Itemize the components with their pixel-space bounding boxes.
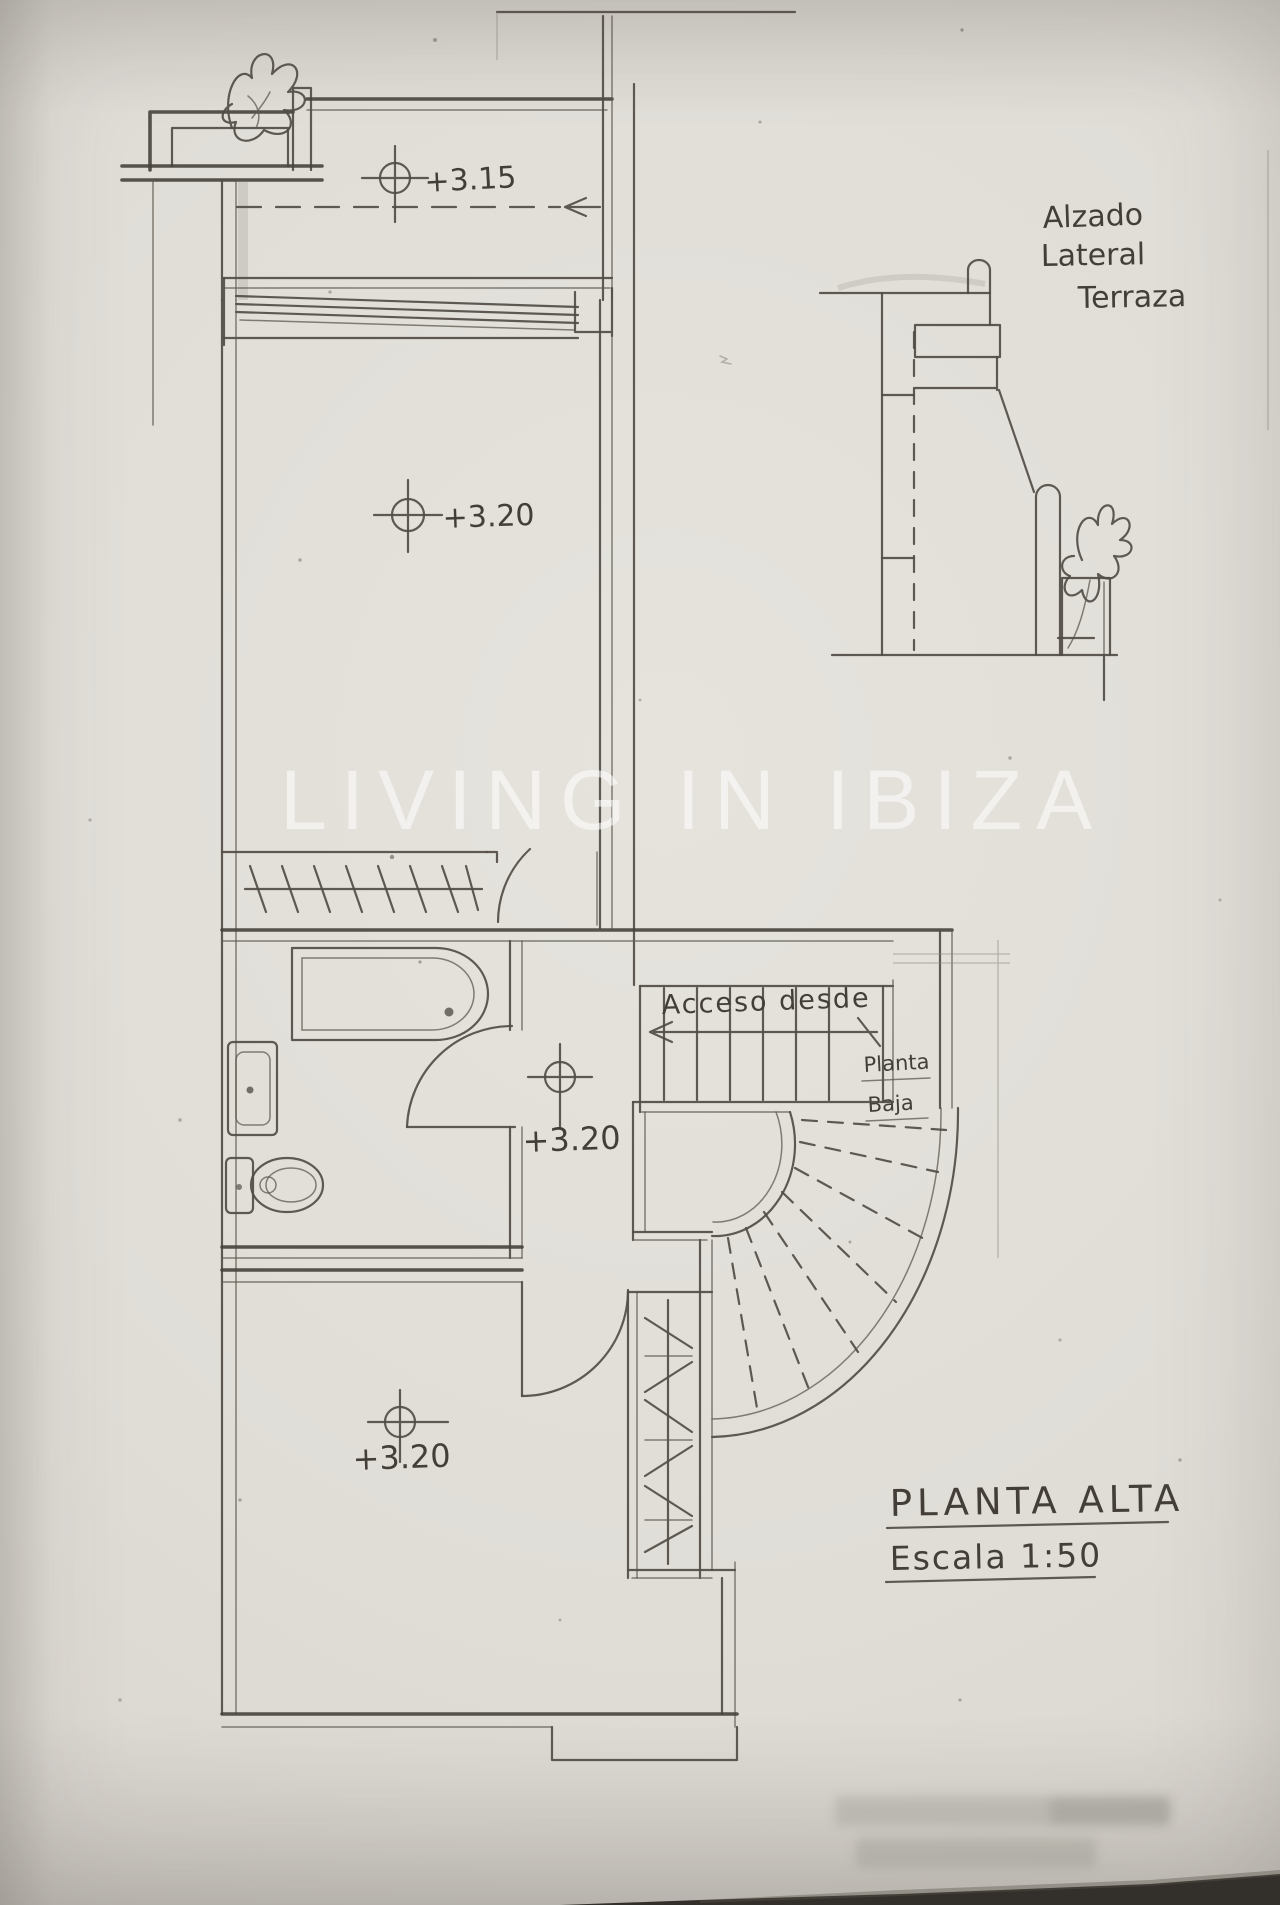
terrace-level-text: +3.15	[424, 160, 518, 200]
bleed-through-mark	[1050, 1798, 1170, 1824]
stairs-target-line2: Baja	[867, 1091, 914, 1117]
bathroom	[222, 941, 522, 1258]
elevation-label-line3: Terraza	[1077, 279, 1187, 316]
stairs-straight-flight: Acceso desde Planta Baja	[640, 930, 1010, 1258]
watermark: LIVING IN IBIZA	[280, 752, 1106, 849]
photo-edge	[560, 1870, 1280, 1905]
bathroom-door	[407, 1026, 515, 1127]
main-room: +3.20	[222, 300, 612, 1714]
level-marker-main-room: +3.20	[374, 480, 535, 552]
stairs-access-label: Acceso desde	[661, 983, 871, 1021]
top-boundary	[497, 12, 795, 60]
main-room-level-text: +3.20	[442, 498, 535, 536]
hall: +3.20	[522, 1044, 621, 1160]
lower-room-door	[522, 1282, 628, 1396]
window-band	[224, 278, 612, 345]
winder-tread-dashes	[728, 1120, 946, 1414]
level-marker-terrace: +3.15	[362, 146, 517, 222]
stairs-target-label: Planta Baja	[862, 1050, 930, 1121]
lower-room-level-text: +3.20	[352, 1437, 451, 1478]
elevation-plant-sketch	[1062, 505, 1131, 648]
elevation-label-line1: Alzado	[1042, 198, 1144, 236]
plan-title: PLANTA ALTA	[889, 1477, 1184, 1525]
title-block: PLANTA ALTA Escala 1:50	[886, 1477, 1185, 1582]
elevation-label-line2: Lateral	[1041, 237, 1146, 274]
paper-specks	[88, 28, 1221, 1701]
main-room-door	[498, 849, 597, 925]
plan-scale: Escala 1:50	[889, 1535, 1102, 1578]
bathtub	[292, 948, 488, 1040]
hall-level-text: +3.20	[522, 1119, 621, 1160]
closet-wardrobe	[222, 852, 497, 912]
lower-room-step	[552, 1727, 737, 1760]
stray-pencil-mark	[720, 356, 731, 364]
scanned-floor-plan-photo: +3.15	[0, 0, 1280, 1905]
floor-plan-drawing: +3.15	[0, 0, 1280, 1905]
lower-room: +3.20	[222, 1270, 737, 1760]
terrace-dashed-line	[237, 198, 600, 216]
toilet	[226, 1158, 323, 1213]
stairs-direction-arrow	[650, 1018, 880, 1046]
bleed-through-mark	[856, 1838, 1096, 1868]
level-marker-lower-room: +3.20	[352, 1390, 451, 1478]
level-marker-hall: +3.20	[522, 1044, 621, 1160]
stairs-target-line1: Planta	[863, 1050, 930, 1077]
elevation-drawing: Alzado Lateral Terraza	[820, 150, 1268, 700]
